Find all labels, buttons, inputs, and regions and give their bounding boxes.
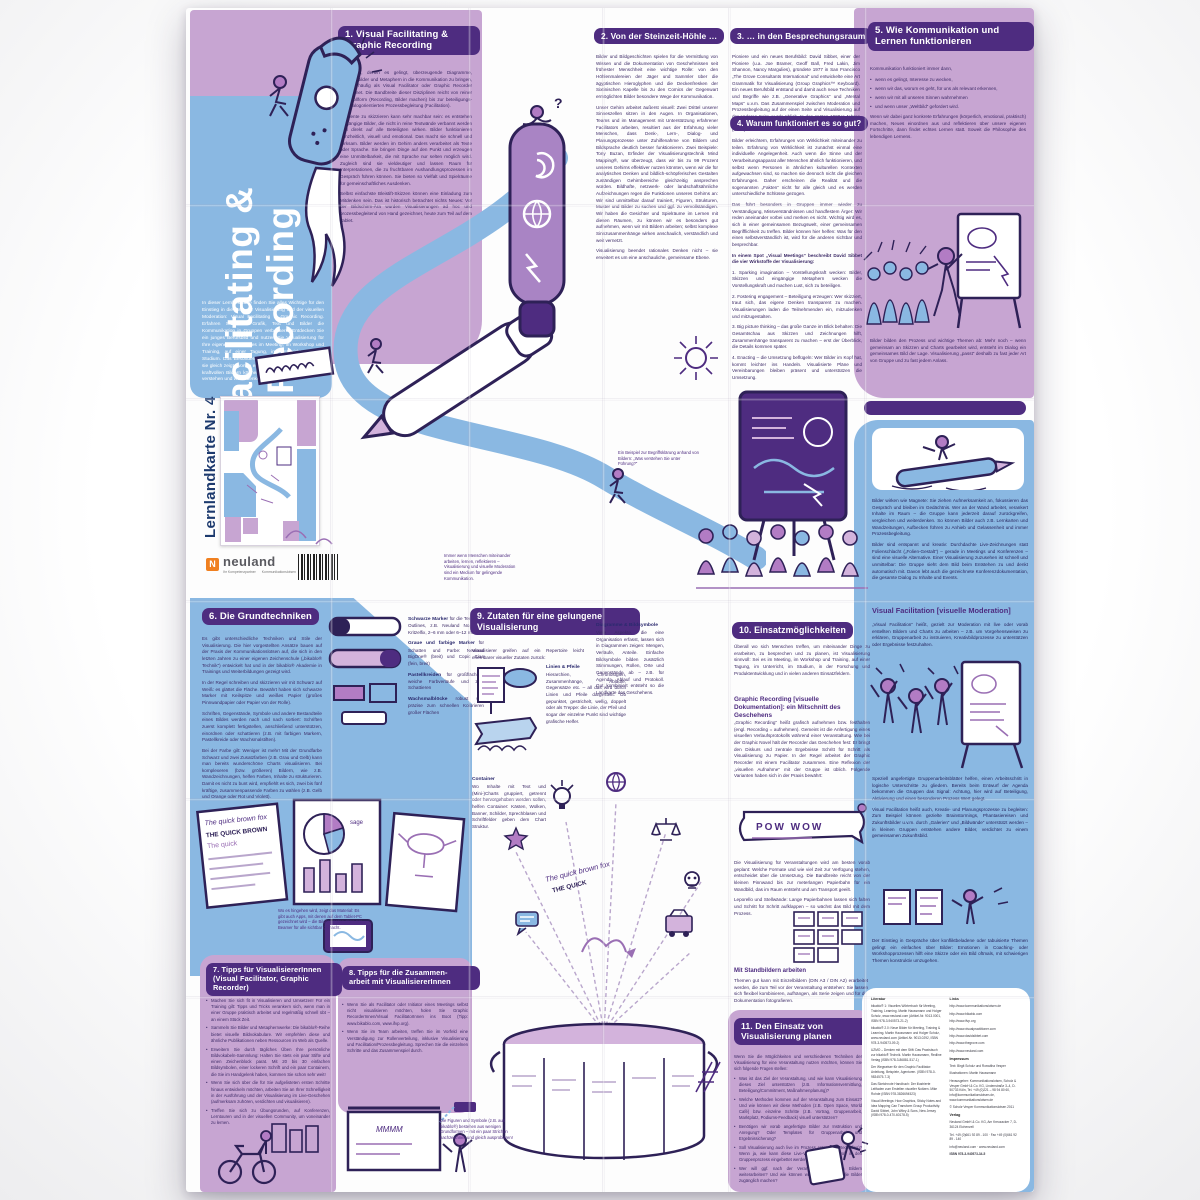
impressum-literature-column: Literatur bikablo® 1: Visuelles Wörterbu… <box>871 997 943 1183</box>
list-item: Tel. +49 (0)661 92 89 - 100 · Fax +49 (0… <box>950 1133 1022 1143</box>
graphic-recording-subhead: Graphic Recording [visuelle Dokumentatio… <box>734 696 854 720</box>
section8-body: Wenn Sie als Facilitator oder Initiator … <box>342 1002 468 1057</box>
list-item: wenn es gelingt, Interesse zu wecken, <box>870 77 1026 84</box>
paragraph: Die Visualisierung für Veranstaltungen w… <box>734 860 870 893</box>
section8-header: 8. Tipps für die Zusammen- arbeit mit Vi… <box>342 966 480 990</box>
pen-surfer-illustration <box>876 428 1022 490</box>
list-item: Wenn Sie sich über die für Sie aufgelist… <box>206 1080 330 1105</box>
section11-header-line1: 11. Den Einsatz von <box>741 1021 867 1031</box>
list-item: Sammeln Sie Bilder und Metaphernwerke: D… <box>206 1025 330 1044</box>
section11-header: 11. Den Einsatz von Visualisierung plane… <box>734 1018 874 1045</box>
list-item: Das Sketchnote Handbuch: Der illustriert… <box>871 1082 943 1096</box>
paragraph: Wenn Sie die Möglichkeiten und verschied… <box>734 1054 862 1072</box>
purple-marker-illustration: ? <box>482 94 592 359</box>
supply-label: Wachsmalblöcke <box>408 697 448 702</box>
paragraph: Schriften, Gegenstände, Symbole und ande… <box>202 711 322 744</box>
team-flipchart-illustration <box>870 656 1028 772</box>
list-item: http://www.neuland.com <box>950 1049 1022 1054</box>
credits-list: Text: Birgit Scholz und Roswitha VesperI… <box>950 1064 1022 1110</box>
literature-list: bikablo® 1: Visuelles Wörterbuch für Mee… <box>871 1004 943 1118</box>
section10-body-4: Themen gut kann mit Einzelbildern (DIN A… <box>734 978 868 1009</box>
right-column-divider-bar <box>864 401 1026 415</box>
paragraph: In der Regel schreiben und skizzieren wi… <box>202 680 322 707</box>
paragraph: Der Einstieg in Gespräche über konfliktb… <box>872 938 1028 965</box>
svg-text:POW WOW: POW WOW <box>756 822 823 833</box>
section9-header-line1: 9. Zutaten für eine gelungene <box>477 611 633 622</box>
svg-text:MMMM: MMMM <box>376 1125 403 1134</box>
communication-bullets: wenn es gelingt, Interesse zu wecken,wen… <box>870 77 1026 111</box>
section9-intro: Visualisierer greifen auf ein Repertoire… <box>472 648 584 661</box>
links-list: http://www.kommunikationslotsen.dehttp:/… <box>950 1004 1022 1053</box>
paragraph: Bilder und Bildgeschichten spielen für d… <box>596 54 718 101</box>
visual-facilitation-body: Speziell angefertigte Gruppenarbeitsblät… <box>872 776 1028 844</box>
list-item: bikablo® 1: Visuelles Wörterbuch für Mee… <box>871 1004 943 1023</box>
list-item: wenn wir mit all unseren Sinnen wahrnehm… <box>870 95 1026 102</box>
isbn-line: ISBN 978-3-940573-34-5 <box>950 1152 1022 1157</box>
section7-body: Machen Sie sich fit in Visualisieren und… <box>206 998 330 1129</box>
section6-header: 6. Die Grundtechniken <box>202 608 319 625</box>
neuland-logo-icon: N <box>206 558 219 571</box>
list-item: Erweitern Sie durch tägliches Üben Ihre … <box>206 1047 330 1078</box>
section5-header: 5. Wie Kommunikation und Lernen funktion… <box>868 22 1034 51</box>
list-item: http://www.bikablo.com <box>950 1012 1022 1017</box>
list-item: Der Wegweiser für den Graphic Facilitato… <box>871 1065 943 1079</box>
literature-header: Literatur <box>871 997 943 1002</box>
paragraph: Es gibt unterschiedliche Techniken und S… <box>202 636 322 676</box>
section10-body-1: Überall wo sich Menschen treffen, um mit… <box>734 644 870 681</box>
section2-header: 2. Von der Steinzeit-Höhle … <box>594 28 724 44</box>
paragraph: „Graphic Recording“ heißt grafisch aufne… <box>734 720 870 780</box>
supply-label: Schwarze Marker <box>408 617 448 622</box>
impressum-box: Literatur bikablo® 1: Visuelles Wörterbu… <box>862 988 1030 1192</box>
paragraph: Bilder sind entspannt und kreativ: Durch… <box>872 542 1028 582</box>
audience-crowd-illustration <box>686 496 876 596</box>
caption-figuren: Die Figuren und Symbole (z.B. aus bikabl… <box>440 1118 518 1141</box>
list-item: und wenn unser „Weltbild“ gefordert wird… <box>870 104 1026 111</box>
scroll-banner-illustration: POW WOW <box>734 798 874 856</box>
section3-header: 3. … in den Besprechungsraum <box>730 28 872 44</box>
ingredient-desc: Viele Aspekte, die eine Organisation erf… <box>596 630 664 697</box>
list-item: Herausgeber: Kommunikationslotsen, Schol… <box>950 1079 1022 1103</box>
list-item: Wenn Sie im Team arbeiten, treffen Sie i… <box>342 1029 468 1054</box>
list-item: wenn wir das, worum es geht, für uns als… <box>870 86 1026 93</box>
visual-facilitation-heading: Visual Facilitation [visuelle Moderation… <box>872 606 1022 615</box>
section7-header-line2: (Visual Facilitator, Graphic Recorder) <box>213 975 335 993</box>
section4-header: 4. Warum funktioniert es so gut? <box>730 116 868 131</box>
ingredient-label: Diagramme & Bildsymbole <box>596 622 664 629</box>
links-header: Links <box>950 997 1022 1002</box>
list-item: Machen Sie sich fit in Visualisieren und… <box>206 998 330 1023</box>
section8-header-line2: arbeit mit VisualisiererInnen <box>349 978 473 987</box>
svg-text:?: ? <box>554 95 563 111</box>
poster: Lernlandkarte Nr. 4 Visual Facilitating … <box>186 8 1034 1192</box>
list-item: Text: Birgit Scholz und Roswitha Vesper <box>950 1064 1022 1069</box>
section5-body: Kommunikation funktioniert immer dann, w… <box>870 66 1026 145</box>
section10-header: 10. Einsatzmöglichkeiten <box>732 622 853 639</box>
photo-backdrop: { "masthead": { "series": "Lernlandkarte… <box>0 0 1200 1200</box>
caption-material: Wo es hingehen wird, zeigt das Material:… <box>278 908 366 931</box>
list-item: Neuland GmbH & Co. KG, Am Kreuzacker 7, … <box>950 1120 1022 1130</box>
standbilder-grid-illustration <box>790 908 870 966</box>
markers-illustration <box>326 608 404 738</box>
right-column-text-1: Bilder wirken wie Magnete: Sie ziehen Au… <box>872 498 1028 586</box>
section5-header-line1: 5. Wie Kommunikation und <box>875 25 1027 36</box>
paragraph: Bilder bilden den Prozess und wichtige T… <box>870 338 1026 365</box>
svg-text:The quick brown fox: The quick brown fox <box>544 859 611 884</box>
visual-facilitation-intro: „Visual Facilitation“ heißt, gezielt zur… <box>872 622 1028 653</box>
section5-lower-text: Bilder bilden den Prozess und wichtige T… <box>870 338 1026 369</box>
right-column-closing-text: Der Einstieg in Gespräche über konfliktb… <box>872 938 1028 969</box>
svg-text:sage: sage <box>350 820 364 826</box>
list-item: Illustrationen: Martin Haussmann <box>950 1071 1022 1076</box>
cyclist-illustration <box>202 1116 322 1188</box>
paragraph: Überall wo sich Menschen treffen, um mit… <box>734 644 870 677</box>
paragraph: Bilder wirken wie Magnete: Sie ziehen Au… <box>872 498 1028 538</box>
list-item: http://www.thegrove.com <box>950 1041 1022 1046</box>
paragraph: Themen gut kann mit Einzelbildern (DIN A… <box>734 978 868 1005</box>
paragraph: Wenn wir dabei ganz konkrete Erfahrungen… <box>870 114 1026 141</box>
list-item: © Scholz·Vesper Kommunikationslotsen 201… <box>950 1105 1022 1110</box>
verlag-header: Verlag <box>950 1113 1022 1118</box>
paragraph: Kommunikation funktioniert immer dann, <box>870 66 1026 73</box>
list-item: Was ist das Ziel der Veranstaltung, und … <box>734 1076 862 1094</box>
supply-label: Graue und farbige Marker <box>408 641 475 646</box>
list-item: bikablo® 2.0: Neue Bilder für Meeting, T… <box>871 1026 943 1045</box>
verlag-list: Neuland GmbH & Co. KG, Am Kreuzacker 7, … <box>950 1120 1022 1149</box>
list-item: http://www.ifvp.org <box>950 1019 1022 1024</box>
paragraph: „Visual Facilitation“ heißt, gezielt zur… <box>872 622 1028 649</box>
section5-header-line2: Lernen funktionieren <box>875 36 1027 47</box>
standbilder-subhead: Mit Standbildern arbeiten <box>734 968 854 976</box>
projector-screen-illustration: MMMM <box>336 1098 486 1194</box>
list-item: http://www.davidsibbet.com <box>950 1034 1022 1039</box>
supply-label: Pastellkreiden <box>408 673 441 678</box>
boards-presenter-illustration <box>878 882 1026 934</box>
list-item: Welche Methoden kommen auf der Veranstal… <box>734 1097 862 1121</box>
collaboration-tips-list: Wenn Sie als Facilitator oder Initiator … <box>342 1002 468 1054</box>
tips-list: Machen Sie sich fit in Visualisieren und… <box>206 998 330 1127</box>
flipchart-cylinder-explosion-illustration: The quick brown fox THE QUICK <box>486 732 722 1190</box>
list-item: http://www.visualpractitioner.com <box>950 1027 1022 1032</box>
list-item: UZMO – Denken mit dem Stift: Das Praxisb… <box>871 1048 943 1062</box>
presenter-crowd-illustration <box>862 204 1028 344</box>
svg-text:THE QUICK: THE QUICK <box>552 879 588 894</box>
list-item: Visual Meetings: How Graphics, Sticky No… <box>871 1099 943 1118</box>
impressum-header: Impressum <box>950 1057 1022 1062</box>
photographer-figure-illustration <box>794 1126 870 1190</box>
list-item: info@neuland.com · www.neuland.com <box>950 1145 1022 1150</box>
section11-header-line2: Visualisierung planen <box>741 1031 867 1041</box>
ingredient-diagrams: Diagramme & Bildsymbole Viele Aspekte, d… <box>596 622 664 697</box>
section7-header: 7. Tipps für VisualisiererInnen (Visual … <box>206 963 342 996</box>
paragraph: Speziell angefertigte Gruppenarbeitsblät… <box>872 776 1028 803</box>
practice-charts-illustration: The quick brown fox THE QUICK BROWN The … <box>194 764 466 964</box>
list-item: Wenn Sie als Facilitator oder Initiator … <box>342 1002 468 1027</box>
list-item: http://www.kommunikationslotsen.de <box>950 1004 1022 1009</box>
paragraph: Visual Facilitation heißt auch, Kreativ-… <box>872 807 1028 840</box>
impressum-details-column: Links http://www.kommunikationslotsen.de… <box>950 997 1022 1183</box>
section10-body-2: „Graphic Recording“ heißt grafisch aufne… <box>734 720 870 784</box>
